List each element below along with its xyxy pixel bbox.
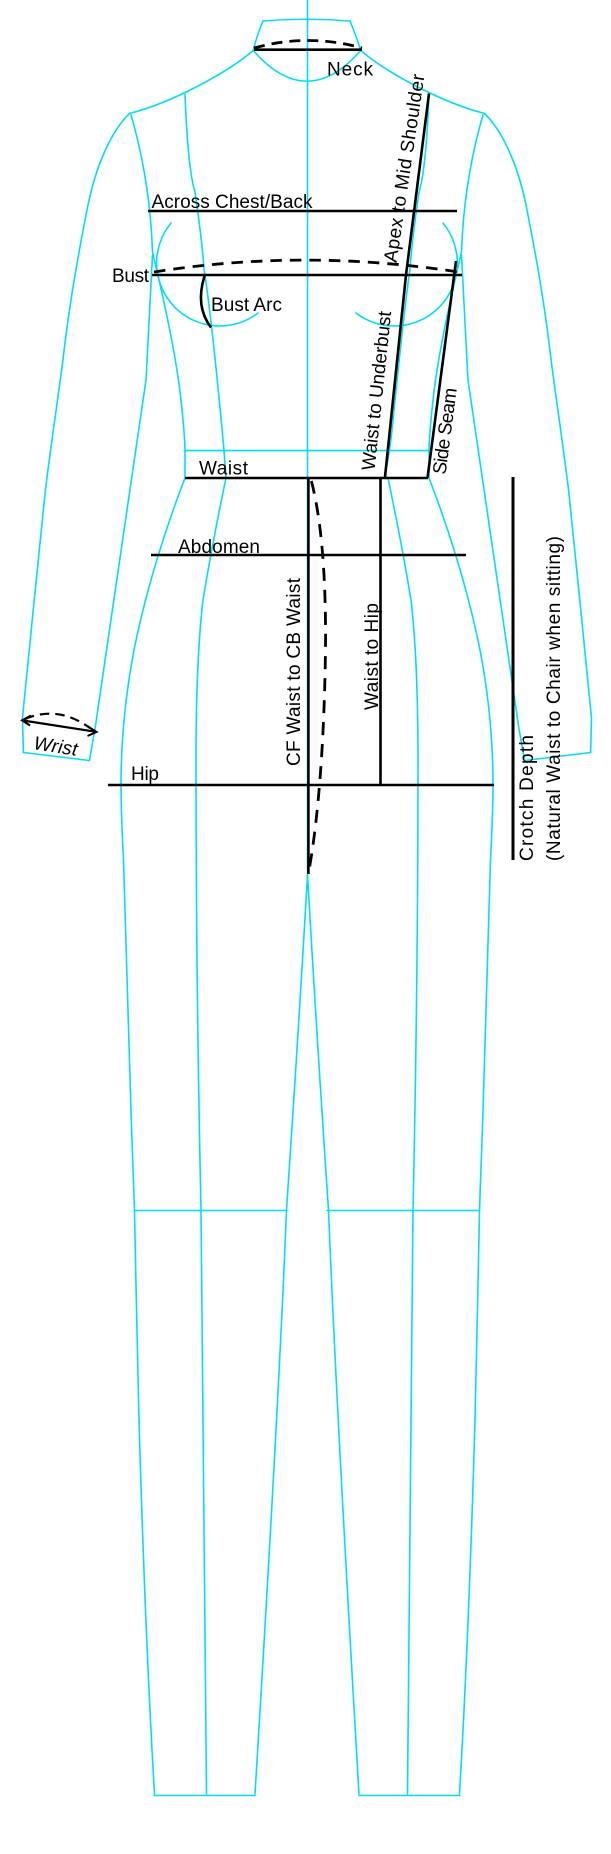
svg-text:Crotch Depth: Crotch Depth — [517, 735, 538, 861]
svg-text:Across Chest/Back: Across Chest/Back — [152, 192, 314, 213]
svg-text:Hip: Hip — [131, 764, 159, 785]
svg-text:Abdomen: Abdomen — [178, 537, 260, 558]
svg-text:Apex to Mid Shoulder: Apex to Mid Shoulder — [381, 72, 430, 264]
svg-text:Wrist: Wrist — [32, 733, 79, 761]
svg-text:Waist: Waist — [199, 459, 249, 480]
svg-text:Side Seam: Side Seam — [430, 387, 462, 476]
svg-text:Waist to Hip: Waist to Hip — [362, 603, 383, 710]
svg-text:Bust Arc: Bust Arc — [211, 295, 282, 316]
svg-text:Neck: Neck — [327, 60, 374, 81]
svg-text:CF Waist to CB Waist: CF Waist to CB Waist — [284, 577, 305, 766]
svg-text:Bust: Bust — [112, 266, 150, 287]
svg-text:(Natural Waist to Chair when s: (Natural Waist to Chair when sitting) — [544, 536, 565, 861]
